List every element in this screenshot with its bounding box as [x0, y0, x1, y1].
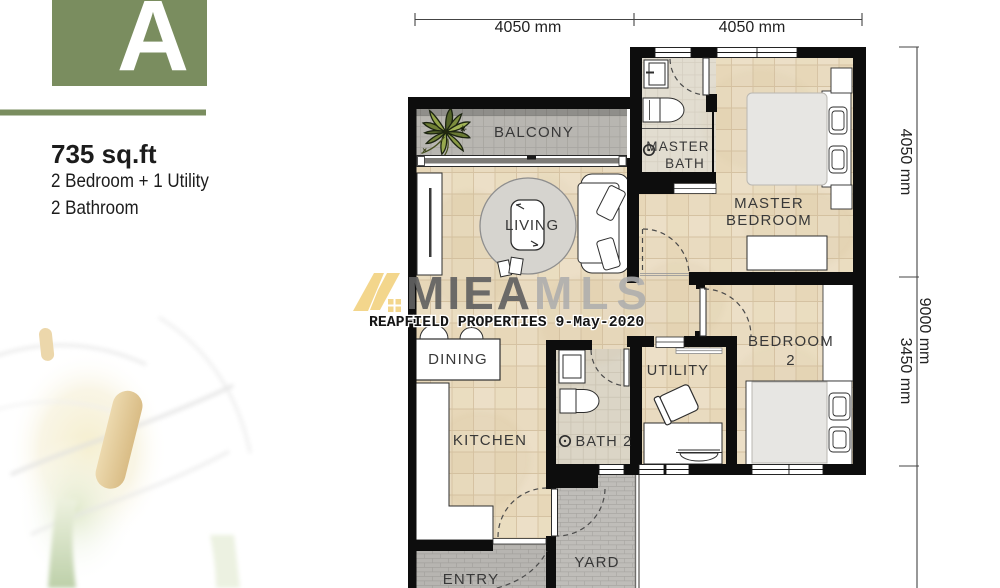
svg-text:REAPFIELD PROPERTIES 9-May-202: REAPFIELD PROPERTIES 9-May-2020 — [369, 315, 644, 331]
svg-text:UTILITY: UTILITY — [647, 363, 709, 379]
svg-text:2 Bathroom: 2 Bathroom — [51, 196, 139, 218]
svg-text:LIVING: LIVING — [505, 217, 559, 234]
svg-text:MLS: MLS — [534, 267, 655, 319]
svg-text:ENTRY: ENTRY — [443, 571, 500, 588]
svg-text:BATH 2: BATH 2 — [576, 434, 633, 450]
svg-text:MIEA: MIEA — [406, 267, 533, 319]
svg-text:4050 mm: 4050 mm — [495, 19, 562, 36]
svg-text:735 sq.ft: 735 sq.ft — [51, 139, 157, 169]
svg-text:4050 mm: 4050 mm — [897, 129, 914, 196]
svg-text:BATH: BATH — [665, 156, 705, 171]
svg-text:MASTER: MASTER — [734, 195, 804, 212]
svg-text:2: 2 — [786, 352, 796, 369]
svg-text:3450 mm: 3450 mm — [897, 338, 914, 405]
svg-text:KITCHEN: KITCHEN — [453, 432, 527, 449]
svg-text:A: A — [117, 0, 189, 92]
svg-text:BALCONY: BALCONY — [494, 124, 574, 141]
svg-text:BEDROOM: BEDROOM — [726, 212, 812, 229]
svg-text:2 Bedroom + 1 Utility: 2 Bedroom + 1 Utility — [51, 169, 210, 191]
svg-text:4050 mm: 4050 mm — [719, 19, 786, 36]
svg-text:MASTER: MASTER — [646, 139, 709, 154]
svg-text:YARD: YARD — [574, 554, 619, 571]
svg-text:DINING: DINING — [428, 351, 488, 368]
svg-text:9000 mm: 9000 mm — [916, 298, 933, 365]
svg-text:BEDROOM: BEDROOM — [748, 333, 834, 350]
